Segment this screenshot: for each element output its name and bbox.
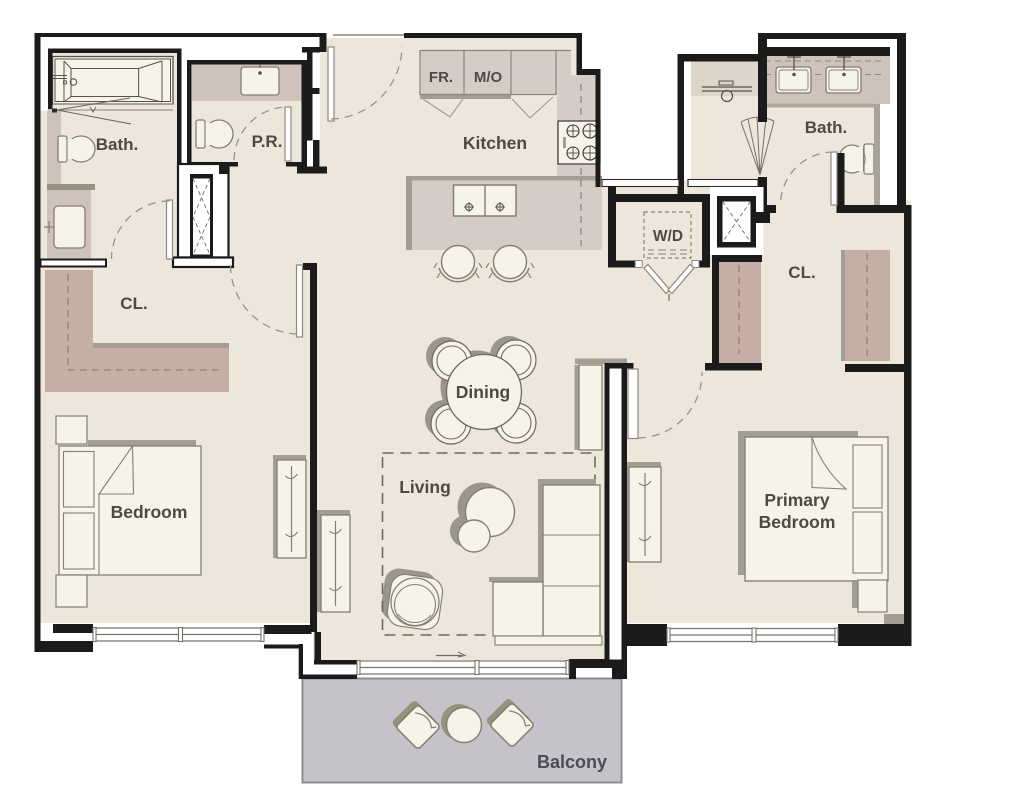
svg-text:Primary: Primary bbox=[764, 490, 829, 510]
svg-text:Bath.: Bath. bbox=[805, 118, 848, 137]
svg-text:M/O: M/O bbox=[474, 69, 503, 86]
svg-text:Kitchen: Kitchen bbox=[463, 133, 527, 153]
svg-text:FR.: FR. bbox=[429, 69, 453, 86]
svg-text:CL.: CL. bbox=[788, 263, 815, 282]
svg-text:Balcony: Balcony bbox=[537, 752, 607, 772]
svg-text:Bedroom: Bedroom bbox=[111, 502, 188, 522]
svg-text:P.R.: P.R. bbox=[252, 132, 283, 151]
svg-text:W/D: W/D bbox=[653, 228, 683, 245]
svg-text:Living: Living bbox=[399, 477, 451, 497]
svg-text:Bath.: Bath. bbox=[96, 135, 139, 154]
svg-text:Dining: Dining bbox=[456, 382, 510, 402]
svg-text:CL.: CL. bbox=[120, 294, 147, 313]
svg-text:Bedroom: Bedroom bbox=[759, 512, 836, 532]
